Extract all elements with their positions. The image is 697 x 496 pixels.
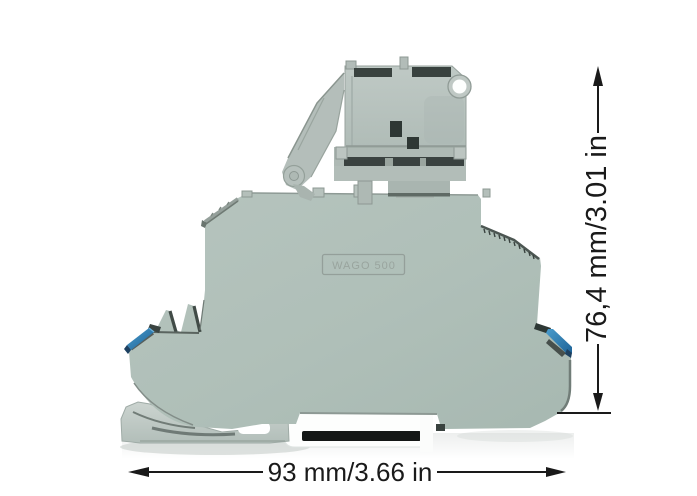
svg-text:93 mm/3.66 in: 93 mm/3.66 in <box>268 457 433 487</box>
svg-text:WAGO 500: WAGO 500 <box>332 260 396 272</box>
svg-text:76,4 mm/3.01 in: 76,4 mm/3.01 in <box>581 135 613 343</box>
